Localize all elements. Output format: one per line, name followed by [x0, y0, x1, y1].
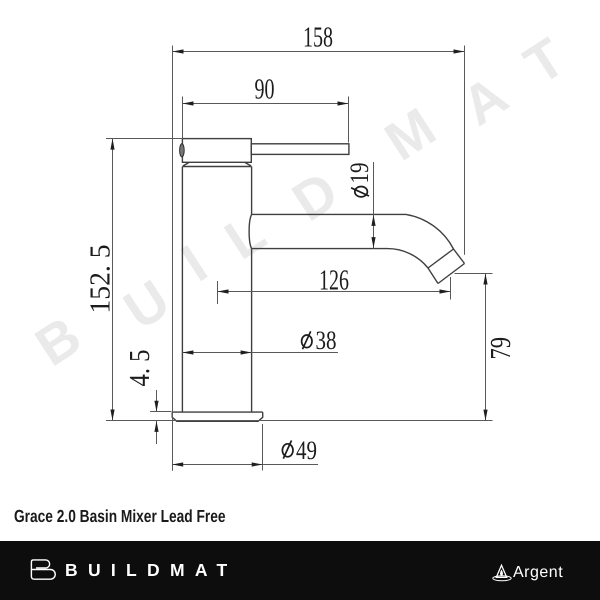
svg-text:90: 90: [255, 74, 275, 106]
svg-text:49: 49: [296, 435, 317, 465]
svg-text:152. 5: 152. 5: [85, 245, 117, 314]
svg-text:T: T: [514, 26, 576, 96]
svg-text:19: 19: [344, 163, 374, 184]
svg-text:I: I: [171, 233, 218, 293]
svg-text:D: D: [281, 159, 348, 233]
svg-text:38: 38: [316, 325, 337, 355]
svg-text:L: L: [214, 201, 276, 271]
svg-text:B: B: [24, 304, 91, 378]
svg-text:79: 79: [485, 337, 517, 360]
svg-text:4. 5: 4. 5: [124, 350, 156, 387]
svg-text:158: 158: [303, 22, 333, 54]
svg-text:126: 126: [319, 264, 349, 296]
svg-text:A: A: [451, 64, 518, 138]
svg-text:M: M: [374, 96, 446, 173]
svg-text:U: U: [113, 268, 180, 342]
